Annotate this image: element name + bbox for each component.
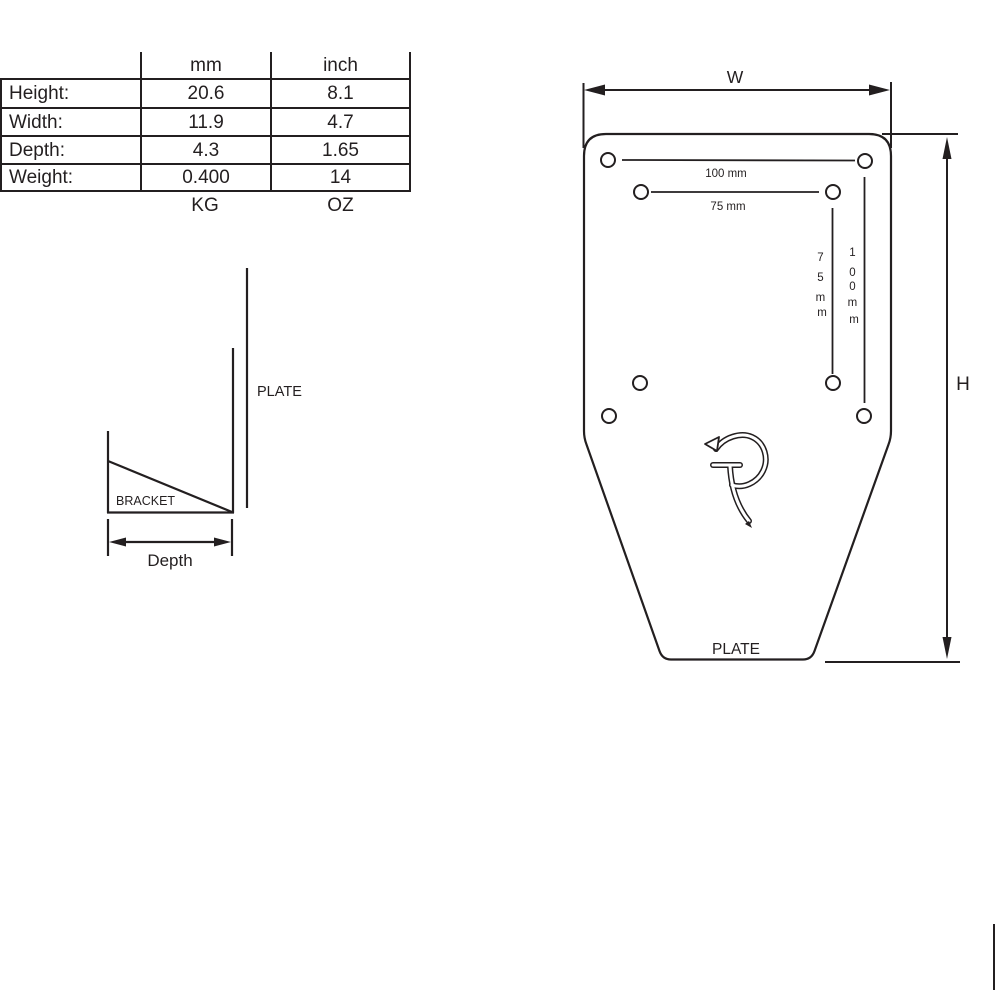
depth-label: Depth [147, 551, 192, 570]
spec-row-weight-mm: 0.400 [140, 163, 270, 192]
vert-100-label: 1 0 0 m m [848, 247, 861, 326]
spec-header-mm: mm [140, 52, 270, 78]
mounting-hole [602, 409, 616, 423]
side-view-diagram: PLATE BRACKET Depth [90, 260, 320, 575]
spec-row-height-label: Height: [0, 78, 140, 107]
spec-row-depth-mm: 4.3 [140, 135, 270, 163]
mounting-holes [601, 153, 872, 423]
mounting-hole [634, 185, 648, 199]
side-plate-label: PLATE [257, 384, 302, 400]
spec-row-weight-inch: 14 [270, 163, 411, 192]
mounting-hole [826, 376, 840, 390]
mounting-hole [826, 185, 840, 199]
spec-row-height-inch: 8.1 [270, 78, 411, 107]
spec-footer-kg: KG [140, 192, 270, 218]
front-plate-label: PLATE [712, 641, 760, 658]
mounting-hole [857, 409, 871, 423]
spec-row-width-inch: 4.7 [270, 107, 411, 135]
vert-75-label: 7 5 m m [816, 252, 829, 319]
width-label: W [727, 67, 744, 87]
spec-header-inch: inch [270, 52, 411, 78]
spec-header-empty [0, 52, 140, 78]
brand-p-logo-icon [705, 435, 766, 528]
span-100-label: 100 mm [705, 168, 747, 180]
spec-row-weight-label: Weight: [0, 163, 140, 192]
side-bracket-label: BRACKET [116, 494, 175, 508]
spec-row-height-mm: 20.6 [140, 78, 270, 107]
spec-row-width-label: Width: [0, 107, 140, 135]
span-75-label: 75 mm [710, 201, 745, 213]
spec-footer-empty [0, 192, 140, 218]
mounting-hole [858, 154, 872, 168]
span-100-line [622, 160, 855, 161]
mounting-hole [601, 153, 615, 167]
spec-table: mm inch Height: 20.6 8.1 Width: 11.9 4.7… [0, 52, 411, 218]
spec-sheet-page: mm inch Height: 20.6 8.1 Width: 11.9 4.7… [0, 0, 1000, 990]
front-view-diagram: W H [575, 60, 975, 680]
spec-footer-oz: OZ [270, 192, 411, 218]
spec-row-depth-label: Depth: [0, 135, 140, 163]
spec-row-width-mm: 11.9 [140, 107, 270, 135]
spec-row-depth-inch: 1.65 [270, 135, 411, 163]
page-edge-line [993, 924, 995, 990]
height-label: H [956, 374, 970, 395]
mounting-hole [633, 376, 647, 390]
